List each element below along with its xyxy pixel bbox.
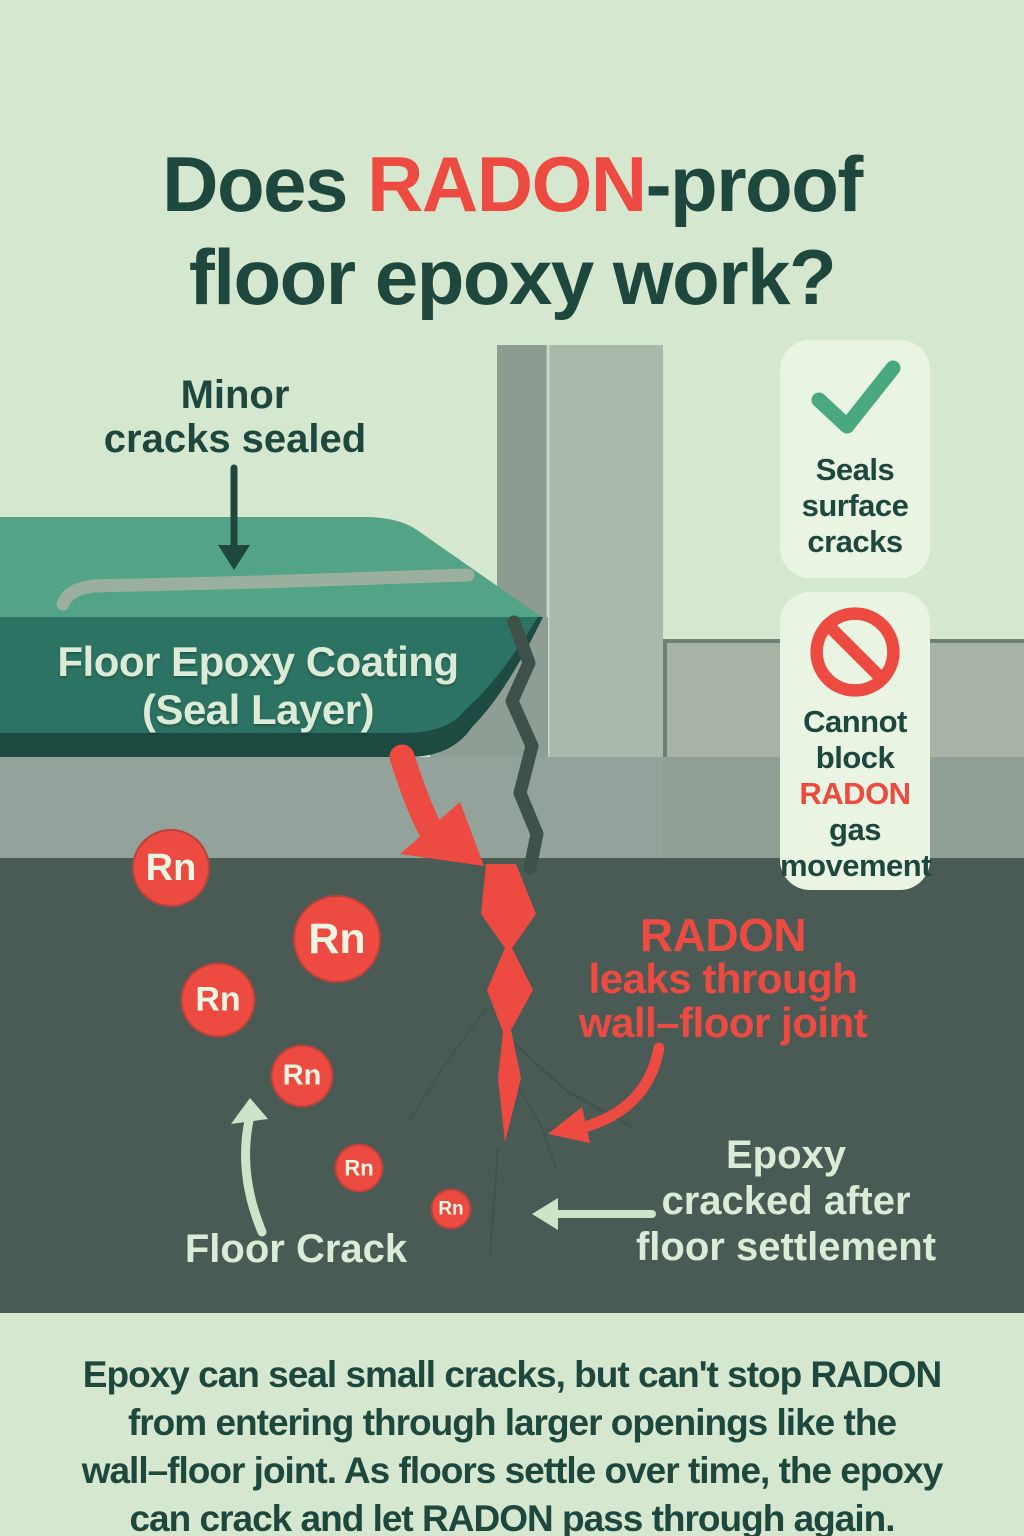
- radon-molecule: Rn: [335, 1144, 384, 1193]
- badge-cannot-line5: movement: [780, 848, 930, 884]
- radon-symbol: Rn: [146, 847, 197, 890]
- summary-line3: wall–floor joint. As floors settle over …: [0, 1447, 1024, 1495]
- badge-cannot-line4: gas: [780, 812, 930, 848]
- badge-text: Cannot block RADON gas movement: [780, 704, 930, 884]
- radon-molecule: Rn: [271, 1045, 334, 1108]
- badge-cannot-line2: block: [780, 740, 930, 776]
- radon-leak-line2: leaks through: [513, 957, 933, 1001]
- badge-seals-line1: Seals: [780, 452, 930, 488]
- floor-crack-label: Floor Crack: [136, 1227, 456, 1272]
- epoxy-cracked-label: Epoxy cracked after floor settlement: [576, 1132, 996, 1270]
- epoxy-cracked-line1: Epoxy: [576, 1132, 996, 1178]
- radon-symbol: Rn: [344, 1155, 373, 1181]
- minor-cracks-line2: cracks sealed: [65, 417, 405, 461]
- prohibited-icon: [807, 604, 903, 700]
- summary-paragraph: Epoxy can seal small cracks, but can't s…: [0, 1351, 1024, 1536]
- epoxy-coating-line1: Floor Epoxy Coating: [23, 638, 493, 686]
- badge-text: Seals surface cracks: [780, 452, 930, 560]
- badge-seals-line2: surface: [780, 488, 930, 524]
- page-title: Does RADON-proof floor epoxy work?: [12, 138, 1012, 324]
- radon-leak-line3: wall–floor joint: [513, 1001, 933, 1045]
- infographic-poster: Does RADON-proof floor epoxy work? Minor…: [0, 0, 1024, 1536]
- title-highlight-radon: RADON: [367, 140, 646, 228]
- title-line2: floor epoxy work?: [189, 233, 835, 321]
- radon-leak-label: RADON leaks through wall–floor joint: [513, 913, 933, 1045]
- summary-line1: Epoxy can seal small cracks, but can't s…: [0, 1351, 1024, 1399]
- badge-seals-line3: cracks: [780, 524, 930, 560]
- epoxy-coating-line2: (Seal Layer): [23, 686, 493, 734]
- badge-seals-surface-cracks: Seals surface cracks: [780, 340, 930, 578]
- summary-line2: from entering through larger openings li…: [0, 1399, 1024, 1447]
- minor-cracks-line1: Minor: [65, 373, 405, 417]
- minor-cracks-label: Minor cracks sealed: [65, 373, 405, 461]
- summary-line4: can crack and let RADON pass through aga…: [0, 1495, 1024, 1536]
- wall-front-face: [548, 345, 663, 757]
- epoxy-cracked-line3: floor settlement: [576, 1224, 996, 1270]
- title-part2: -proof: [646, 140, 862, 228]
- radon-molecule: Rn: [293, 895, 381, 983]
- epoxy-cracked-line2: cracked after: [576, 1178, 996, 1224]
- badge-cannot-line3-radon: RADON: [780, 776, 930, 812]
- radon-symbol: Rn: [308, 915, 365, 964]
- radon-symbol: Rn: [438, 1198, 463, 1220]
- radon-leak-line1: RADON: [513, 913, 933, 957]
- title-part1: Does: [162, 140, 367, 228]
- check-icon: [805, 358, 905, 438]
- badge-cannot-block-radon: Cannot block RADON gas movement: [780, 592, 930, 890]
- radon-symbol: Rn: [195, 981, 240, 1020]
- radon-molecule: Rn: [431, 1189, 472, 1230]
- badge-cannot-line1: Cannot: [780, 704, 930, 740]
- epoxy-coating-label: Floor Epoxy Coating (Seal Layer): [23, 638, 493, 734]
- epoxy-top-surface: [0, 517, 543, 619]
- radon-molecule: Rn: [132, 829, 210, 907]
- radon-symbol: Rn: [283, 1060, 322, 1093]
- radon-molecule: Rn: [181, 963, 256, 1038]
